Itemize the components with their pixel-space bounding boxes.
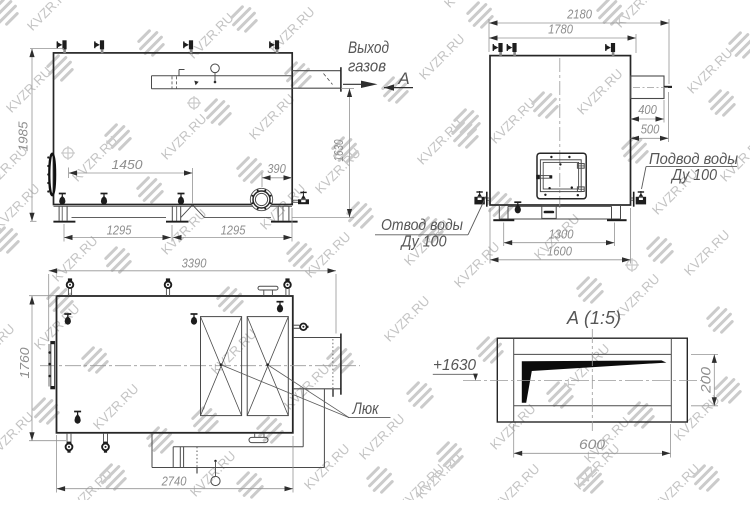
svg-text:Ду 100: Ду 100 [670, 167, 717, 184]
svg-text:1300: 1300 [549, 226, 574, 241]
svg-text:1985: 1985 [16, 121, 31, 152]
svg-text:1780: 1780 [548, 22, 573, 37]
svg-text:Люк: Люк [352, 400, 380, 418]
svg-text:200: 200 [698, 366, 713, 394]
svg-text:2740: 2740 [161, 474, 187, 489]
svg-text:1295: 1295 [221, 222, 246, 237]
svg-text:Отвод воды: Отвод воды [381, 217, 463, 234]
svg-text:1295: 1295 [107, 222, 132, 237]
svg-text:А (1:5): А (1:5) [566, 308, 621, 328]
svg-text:390: 390 [267, 161, 286, 176]
svg-text:А: А [397, 69, 409, 88]
svg-text:2180: 2180 [566, 7, 592, 22]
svg-text:600: 600 [579, 436, 605, 452]
svg-text:1600: 1600 [547, 243, 572, 258]
svg-text:газов: газов [348, 58, 386, 76]
svg-text:400: 400 [638, 102, 657, 117]
svg-text:+1630: +1630 [433, 357, 476, 374]
svg-text:Подвод воды: Подвод воды [649, 151, 738, 168]
svg-text:1760: 1760 [17, 347, 32, 379]
svg-text:Выход: Выход [348, 39, 389, 57]
svg-text:1450: 1450 [112, 157, 144, 172]
svg-text:500: 500 [641, 122, 660, 137]
svg-text:3390: 3390 [182, 255, 207, 270]
svg-text:Ду 100: Ду 100 [400, 234, 447, 251]
svg-text:1630: 1630 [332, 139, 346, 161]
